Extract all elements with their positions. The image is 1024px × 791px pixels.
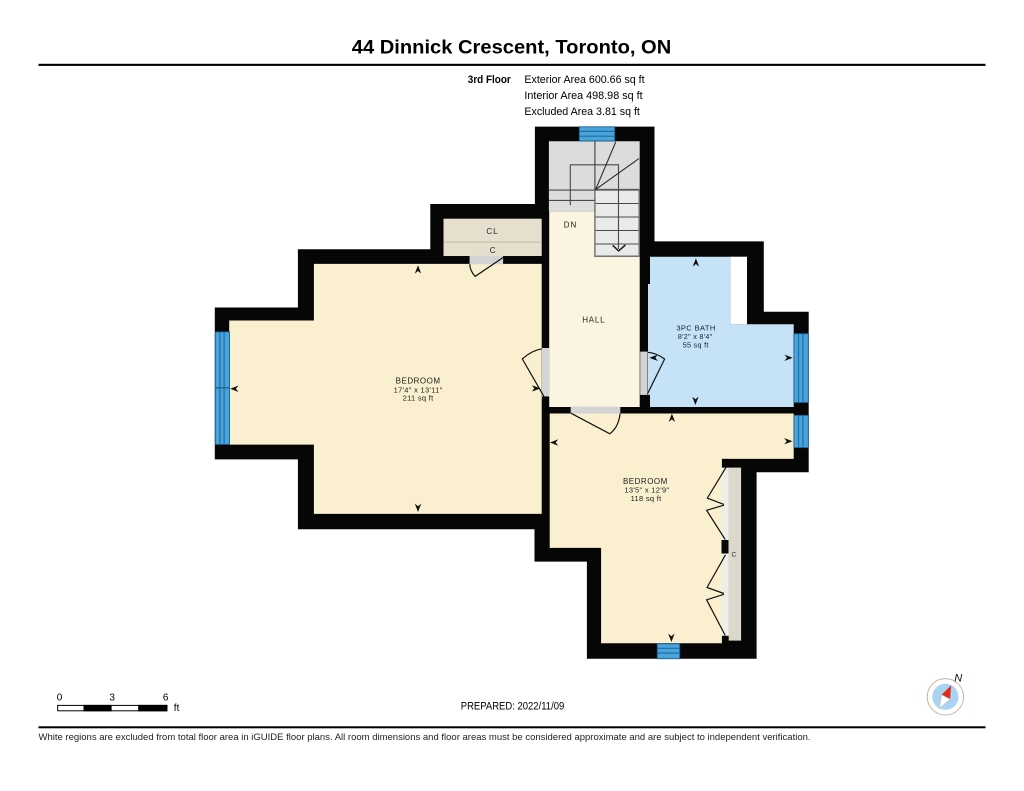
svg-text:ft: ft	[174, 703, 180, 714]
svg-text:DN: DN	[564, 220, 578, 229]
svg-text:C: C	[490, 246, 497, 255]
svg-text:118 sq ft: 118 sq ft	[631, 494, 663, 503]
svg-text:44 Dinnick Crescent, Toronto,: 44 Dinnick Crescent, Toronto, ON	[352, 38, 672, 59]
svg-text:55 sq ft: 55 sq ft	[683, 340, 709, 349]
svg-text:3rd Floor: 3rd Floor	[468, 74, 511, 86]
svg-text:211 sq ft: 211 sq ft	[403, 394, 435, 403]
svg-text:6: 6	[163, 693, 169, 704]
svg-text:N: N	[954, 672, 962, 684]
svg-text:Interior Area 498.98 sq ft: Interior Area 498.98 sq ft	[524, 90, 642, 102]
svg-text:C: C	[731, 551, 736, 558]
svg-text:White regions are excluded fro: White regions are excluded from total fl…	[39, 732, 811, 743]
svg-text:Excluded Area 3.81 sq ft: Excluded Area 3.81 sq ft	[524, 106, 640, 118]
svg-text:Exterior Area 600.66 sq ft: Exterior Area 600.66 sq ft	[524, 74, 644, 86]
svg-text:CL: CL	[486, 227, 498, 236]
svg-text:HALL: HALL	[582, 315, 605, 324]
svg-text:PREPARED: 2022/11/09: PREPARED: 2022/11/09	[461, 700, 565, 712]
svg-text:0: 0	[57, 693, 63, 704]
svg-text:3: 3	[109, 693, 115, 704]
